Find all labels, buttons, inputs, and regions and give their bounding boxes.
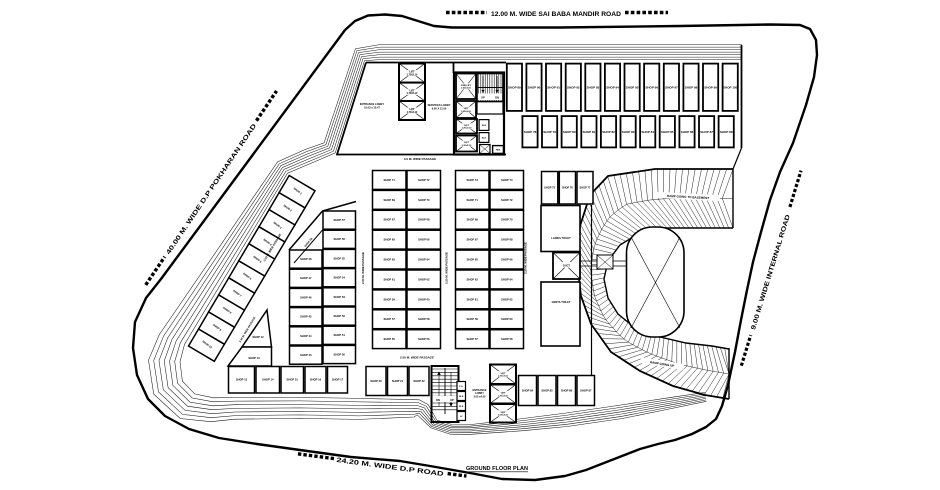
svg-text:SHOP 56: SHOP 56 bbox=[418, 337, 430, 341]
svg-text:SHOP 73: SHOP 73 bbox=[467, 178, 479, 182]
svg-text:2.70x2.10: 2.70x2.10 bbox=[498, 395, 509, 397]
svg-text:SHOP 70: SHOP 70 bbox=[418, 198, 430, 202]
svg-text:SHOP 89: SHOP 89 bbox=[508, 85, 521, 89]
svg-text:2.50 M. WIDE PASSAGE: 2.50 M. WIDE PASSAGE bbox=[445, 252, 449, 284]
svg-text:SHOP 12: SHOP 12 bbox=[252, 335, 264, 339]
svg-text:ELE: ELE bbox=[459, 406, 464, 408]
svg-text:SHOP 53: SHOP 53 bbox=[334, 295, 346, 299]
svg-text:SHOP 44: SHOP 44 bbox=[300, 334, 312, 338]
svg-text:SHOP 69: SHOP 69 bbox=[467, 218, 479, 222]
svg-text:LIFT: LIFT bbox=[501, 393, 506, 395]
svg-text:SHOP 58: SHOP 58 bbox=[501, 337, 513, 341]
svg-text:SHOP 70: SHOP 70 bbox=[501, 218, 513, 222]
svg-text:SHOP 69: SHOP 69 bbox=[384, 198, 396, 202]
svg-text:12.00 M. WIDE SAI BABA MANDIR: 12.00 M. WIDE SAI BABA MANDIR ROAD bbox=[491, 11, 621, 18]
svg-text:SHOP 68: SHOP 68 bbox=[501, 238, 513, 242]
svg-text:UP: UP bbox=[481, 96, 485, 100]
svg-text:LIFT: LIFT bbox=[464, 125, 469, 127]
svg-text:LIFT: LIFT bbox=[464, 108, 469, 110]
svg-text:2.50 M. WIDE PASSAGE: 2.50 M. WIDE PASSAGE bbox=[524, 242, 528, 274]
svg-text:2.70x2.10: 2.70x2.10 bbox=[407, 92, 418, 95]
svg-text:SHOP 87: SHOP 87 bbox=[700, 130, 713, 134]
svg-text:9.00 X 11.00: 9.00 X 11.00 bbox=[432, 106, 447, 110]
svg-text:SHOP 92: SHOP 92 bbox=[567, 85, 580, 89]
svg-text:SHOP 95: SHOP 95 bbox=[626, 85, 639, 89]
svg-text:SHOP 20: SHOP 20 bbox=[370, 379, 382, 383]
svg-text:SHOP 66: SHOP 66 bbox=[501, 258, 513, 262]
svg-text:SHOP 22: SHOP 22 bbox=[413, 379, 425, 383]
svg-text:SHOP 46: SHOP 46 bbox=[300, 295, 312, 299]
svg-text:SHOP 52: SHOP 52 bbox=[334, 314, 346, 318]
svg-text:LIFT: LIFT bbox=[464, 142, 469, 144]
svg-text:SHOP 65: SHOP 65 bbox=[467, 258, 479, 262]
svg-text:SHOP 100: SHOP 100 bbox=[723, 85, 738, 89]
svg-text:SHOP 64: SHOP 64 bbox=[501, 277, 513, 281]
svg-text:SHOP 82: SHOP 82 bbox=[602, 130, 615, 134]
svg-text:DUCT: DUCT bbox=[563, 264, 570, 267]
svg-text:SHOP 62: SHOP 62 bbox=[501, 297, 513, 301]
svg-text:3.0 M. WIDE PASSAGE: 3.0 M. WIDE PASSAGE bbox=[404, 157, 436, 161]
svg-text:SHOP 71: SHOP 71 bbox=[384, 178, 396, 182]
svg-text:DN: DN bbox=[495, 96, 499, 100]
svg-text:LADIES TOILET: LADIES TOILET bbox=[551, 236, 571, 240]
svg-text:SHOP 65: SHOP 65 bbox=[384, 238, 396, 242]
svg-text:SHOP 15: SHOP 15 bbox=[287, 378, 299, 382]
svg-text:SHOP 14: SHOP 14 bbox=[262, 378, 274, 382]
svg-text:SHOP 57: SHOP 57 bbox=[334, 218, 346, 222]
svg-text:SHOP 76: SHOP 76 bbox=[562, 186, 573, 190]
svg-text:SHOP 64: SHOP 64 bbox=[418, 258, 430, 262]
svg-text:SHOP 96: SHOP 96 bbox=[645, 85, 658, 89]
svg-text:SHOP 87: SHOP 87 bbox=[580, 388, 592, 392]
svg-text:SHOP 68: SHOP 68 bbox=[418, 218, 430, 222]
svg-text:SHOP 85: SHOP 85 bbox=[541, 388, 553, 392]
svg-text:SHOP 61: SHOP 61 bbox=[467, 297, 479, 301]
svg-text:SHOP 83: SHOP 83 bbox=[622, 130, 635, 134]
svg-text:SERVICES LOBBY: SERVICES LOBBY bbox=[428, 103, 451, 107]
svg-text:SHOP 55: SHOP 55 bbox=[334, 256, 346, 260]
svg-text:SHOP 72: SHOP 72 bbox=[501, 198, 513, 202]
svg-text:15.03 x 10.47: 15.03 x 10.47 bbox=[364, 105, 380, 109]
svg-text:SHOP 75: SHOP 75 bbox=[544, 186, 555, 190]
svg-text:SHOP 59: SHOP 59 bbox=[384, 297, 396, 301]
svg-text:ELE: ELE bbox=[459, 396, 464, 398]
svg-text:2.50 M. WIDE PASSAGE: 2.50 M. WIDE PASSAGE bbox=[400, 356, 434, 360]
svg-text:3.00 x4.00: 3.00 x4.00 bbox=[474, 395, 486, 398]
svg-text:SHOP 78: SHOP 78 bbox=[524, 130, 537, 134]
svg-text:SHOP 98: SHOP 98 bbox=[685, 85, 698, 89]
svg-text:SHOP 67: SHOP 67 bbox=[384, 218, 396, 222]
svg-text:ELE: ELE bbox=[482, 125, 487, 127]
svg-text:SHOP 93: SHOP 93 bbox=[587, 85, 600, 89]
svg-text:SHOP 66: SHOP 66 bbox=[418, 238, 430, 242]
svg-text:SHOP 62: SHOP 62 bbox=[418, 277, 430, 281]
svg-text:SHOP 72: SHOP 72 bbox=[418, 178, 430, 182]
svg-text:SHOP 63: SHOP 63 bbox=[384, 258, 396, 262]
svg-text:3.70x2.10: 3.70x2.10 bbox=[462, 128, 473, 130]
svg-text:SHOP 84: SHOP 84 bbox=[522, 388, 534, 392]
svg-text:SHOP 13: SHOP 13 bbox=[248, 356, 260, 360]
svg-text:SHOP 43: SHOP 43 bbox=[300, 353, 312, 357]
svg-text:SHOP 58: SHOP 58 bbox=[418, 317, 430, 321]
svg-text:SHOP 84: SHOP 84 bbox=[641, 130, 654, 134]
svg-text:SHOP 67: SHOP 67 bbox=[467, 238, 479, 242]
svg-text:2.70x2.10: 2.70x2.10 bbox=[498, 376, 509, 378]
svg-text:SHOP 57: SHOP 57 bbox=[467, 337, 479, 341]
svg-text:DN: DN bbox=[436, 398, 440, 402]
svg-text:GROUND FLOOR PLAN: GROUND FLOOR PLAN bbox=[466, 466, 528, 472]
svg-text:2.50 M. WIDE PASSAGE: 2.50 M. WIDE PASSAGE bbox=[361, 252, 365, 284]
svg-text:ENTRANCE LOBBY: ENTRANCE LOBBY bbox=[360, 102, 384, 106]
svg-text:SHOP 13: SHOP 13 bbox=[236, 378, 248, 382]
svg-text:SHOP 74: SHOP 74 bbox=[501, 178, 513, 182]
svg-text:SHOP 94: SHOP 94 bbox=[606, 85, 619, 89]
svg-text:SHOP 63: SHOP 63 bbox=[467, 277, 479, 281]
svg-text:SHOP 16: SHOP 16 bbox=[310, 378, 322, 382]
svg-text:SHOP 57: SHOP 57 bbox=[384, 317, 396, 321]
svg-text:SHOP 51: SHOP 51 bbox=[334, 333, 346, 337]
svg-text:SHOP 54: SHOP 54 bbox=[334, 276, 346, 280]
svg-text:SHOP 85: SHOP 85 bbox=[661, 130, 674, 134]
svg-text:SHOP 17: SHOP 17 bbox=[332, 378, 344, 382]
svg-text:SHOP 97: SHOP 97 bbox=[665, 85, 678, 89]
svg-text:SHOP 77: SHOP 77 bbox=[580, 186, 591, 190]
svg-text:LIFT: LIFT bbox=[501, 373, 506, 375]
svg-text:SHOP 90: SHOP 90 bbox=[528, 85, 541, 89]
svg-text:UP: UP bbox=[450, 398, 454, 402]
svg-text:SHOP 91: SHOP 91 bbox=[547, 85, 560, 89]
svg-text:SHOP 48: SHOP 48 bbox=[300, 257, 312, 261]
svg-text:SHOP 59: SHOP 59 bbox=[467, 317, 479, 321]
svg-text:SHOP 21: SHOP 21 bbox=[392, 379, 404, 383]
svg-text:SHOP 55: SHOP 55 bbox=[384, 337, 396, 341]
svg-text:SHOP 81: SHOP 81 bbox=[583, 130, 596, 134]
svg-text:SHOP 60: SHOP 60 bbox=[501, 317, 513, 321]
svg-text:SHOP 99: SHOP 99 bbox=[704, 85, 717, 89]
svg-text:2.70x2.10: 2.70x2.10 bbox=[407, 111, 418, 114]
svg-text:2.70x2.10: 2.70x2.10 bbox=[498, 415, 509, 417]
svg-text:GENTS TOILET: GENTS TOILET bbox=[552, 300, 571, 304]
svg-text:SHOP 80: SHOP 80 bbox=[563, 130, 576, 134]
svg-text:SHOP 86: SHOP 86 bbox=[681, 130, 694, 134]
svg-text:PAN: PAN bbox=[496, 148, 501, 151]
svg-text:SHOP 56: SHOP 56 bbox=[334, 237, 346, 241]
svg-text:SHOP 88: SHOP 88 bbox=[720, 130, 733, 134]
svg-text:SHOP 50: SHOP 50 bbox=[334, 352, 346, 356]
svg-text:SHOP 60: SHOP 60 bbox=[418, 297, 430, 301]
svg-text:2.70x2.10: 2.70x2.10 bbox=[407, 74, 418, 77]
svg-text:3.00x2.10: 3.00x2.10 bbox=[461, 111, 472, 113]
svg-text:3.70x2.10: 3.70x2.10 bbox=[462, 145, 473, 147]
svg-text:SHOP 47: SHOP 47 bbox=[300, 276, 312, 280]
svg-text:SHOP 79: SHOP 79 bbox=[543, 130, 556, 134]
svg-text:SHOP 45: SHOP 45 bbox=[300, 315, 312, 319]
svg-text:F.O.: F.O. bbox=[459, 386, 463, 388]
svg-text:LIFT: LIFT bbox=[501, 412, 506, 414]
svg-text:2.50x2.10: 2.50x2.10 bbox=[461, 88, 472, 90]
svg-text:FIRE LIFT: FIRE LIFT bbox=[461, 85, 472, 87]
svg-text:ELE: ELE bbox=[482, 137, 487, 139]
svg-text:SHOP 61: SHOP 61 bbox=[384, 277, 396, 281]
svg-text:SHOP 86: SHOP 86 bbox=[561, 388, 573, 392]
svg-text:SHOP 71: SHOP 71 bbox=[467, 198, 479, 202]
